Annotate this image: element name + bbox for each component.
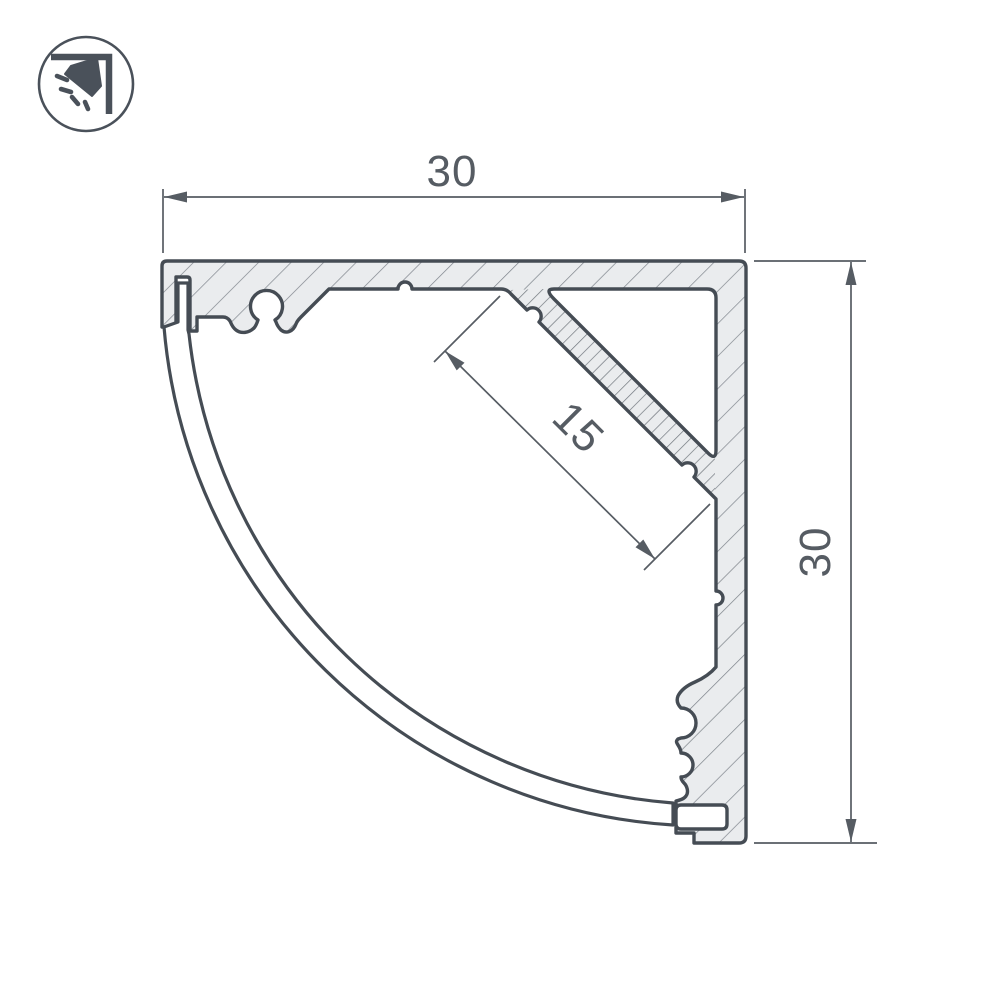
corner-downlight-icon xyxy=(39,37,133,131)
dimension-platform-label: 15 xyxy=(543,392,614,463)
dimension-width-top xyxy=(163,189,745,253)
arrowhead-down xyxy=(846,819,857,842)
profile-technical-drawing: 30 30 15 xyxy=(0,0,1000,1000)
dimension-height-label: 30 xyxy=(791,527,840,578)
drawing-page: 30 30 15 xyxy=(0,0,1000,1000)
extension-line xyxy=(434,296,500,362)
arrowhead-up xyxy=(846,262,857,285)
arrowhead-right xyxy=(721,192,744,203)
dimension-width-label: 30 xyxy=(427,147,478,196)
arrowhead-left xyxy=(164,192,187,203)
extension-line xyxy=(644,504,710,570)
